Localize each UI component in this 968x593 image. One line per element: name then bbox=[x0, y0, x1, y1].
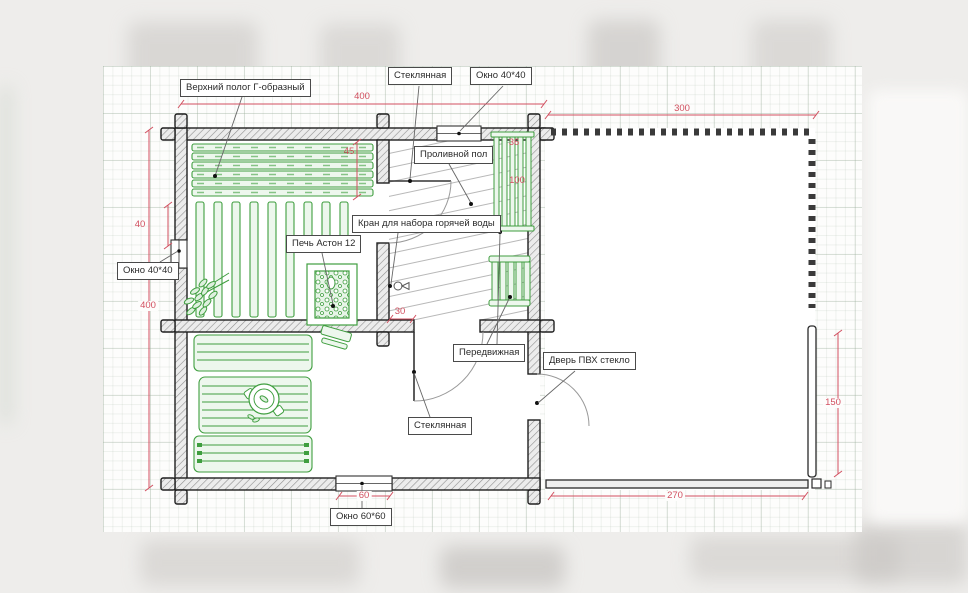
dim-150: 150 bbox=[823, 398, 843, 408]
dim-45: 45 bbox=[344, 147, 355, 157]
dim-100: 100 bbox=[509, 176, 525, 186]
dim-270: 270 bbox=[665, 491, 685, 501]
label-upper-shelf: Верхний полог Г-образный bbox=[180, 79, 311, 97]
label-glass-door-bottom: Стеклянная bbox=[408, 417, 472, 435]
label-pouring-floor: Проливной пол bbox=[414, 146, 493, 164]
dim-36: 36 bbox=[509, 138, 520, 148]
restroom-table bbox=[199, 377, 311, 433]
label-window-bottom: Окно 60*60 bbox=[330, 508, 392, 526]
restroom-bench-top bbox=[194, 335, 312, 371]
floorplan-screenshot: Верхний полог Г-образный Стеклянная Окно… bbox=[0, 0, 968, 593]
window-bottom-60x60 bbox=[336, 476, 392, 491]
plan-svg bbox=[0, 0, 968, 593]
dim-60: 60 bbox=[357, 491, 372, 501]
movable-bench bbox=[489, 256, 530, 306]
dim-left-400: 400 bbox=[138, 301, 158, 311]
label-stove: Печь Астон 12 bbox=[286, 235, 361, 253]
label-glass-door-top: Стеклянная bbox=[388, 67, 452, 85]
label-movable-bench: Передвижная bbox=[453, 344, 525, 362]
sauna-stove bbox=[307, 264, 357, 325]
dim-top-300: 300 bbox=[674, 104, 690, 114]
label-hot-water-tap: Кран для набора горячей воды bbox=[352, 215, 501, 233]
window-top-40x40 bbox=[437, 126, 481, 141]
label-window-left: Окно 40*40 bbox=[117, 262, 179, 280]
dim-40: 40 bbox=[135, 220, 146, 230]
dim-30: 30 bbox=[395, 307, 406, 317]
restroom-bench-bottom bbox=[194, 436, 312, 472]
label-pvc-door: Дверь ПВХ стекло bbox=[543, 352, 636, 370]
dim-top-400: 400 bbox=[354, 92, 370, 102]
label-window-top: Окно 40*40 bbox=[470, 67, 532, 85]
